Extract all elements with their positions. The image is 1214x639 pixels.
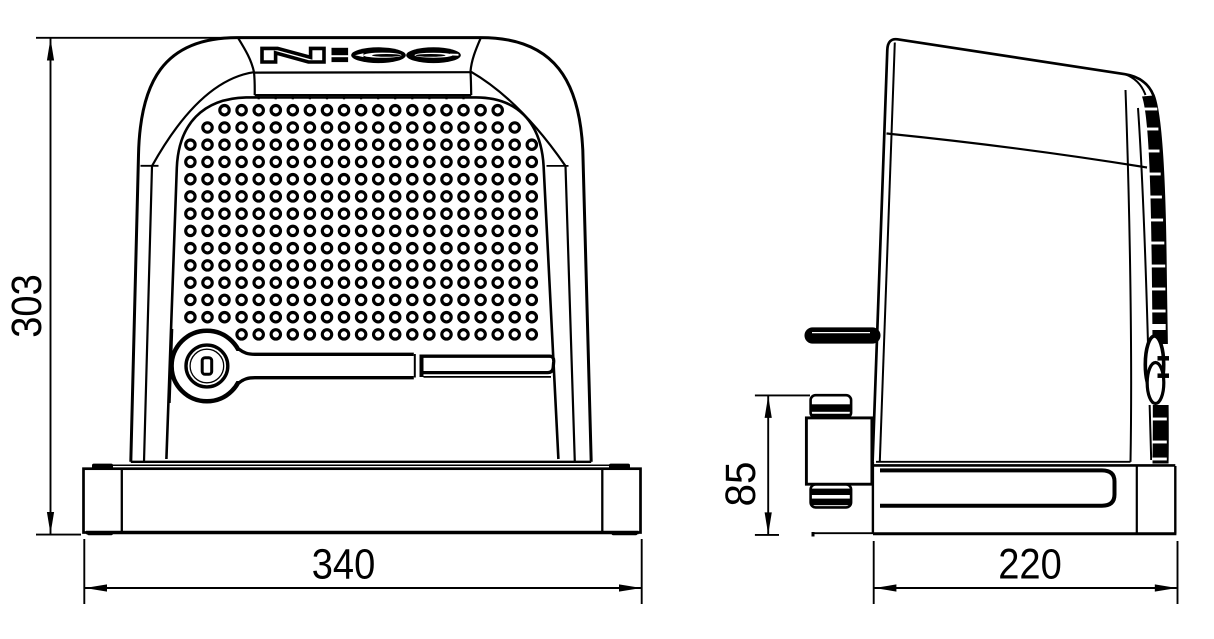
svg-text:85: 85	[718, 462, 765, 507]
svg-text:340: 340	[312, 542, 376, 589]
svg-text:303: 303	[4, 274, 51, 338]
svg-text:220: 220	[998, 542, 1062, 589]
